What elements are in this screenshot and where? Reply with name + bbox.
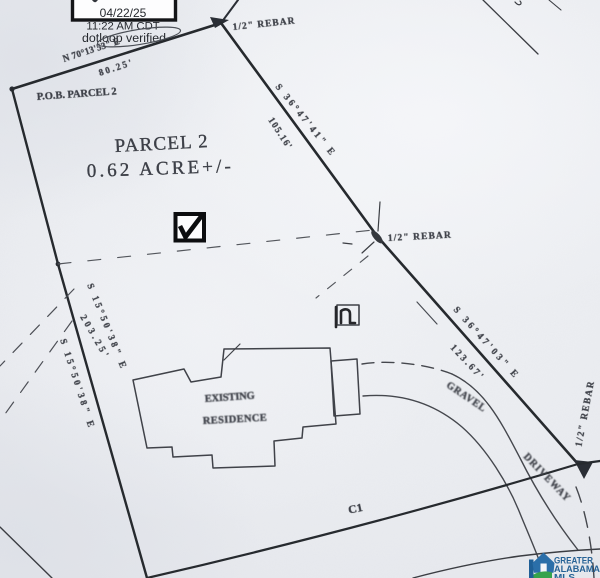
svg-text:04/22/25: 04/22/25: [100, 6, 147, 20]
svg-text:MLS: MLS: [554, 573, 575, 578]
svg-text:dotloop verified: dotloop verified: [82, 31, 166, 45]
svg-text:C1: C1: [347, 500, 364, 517]
